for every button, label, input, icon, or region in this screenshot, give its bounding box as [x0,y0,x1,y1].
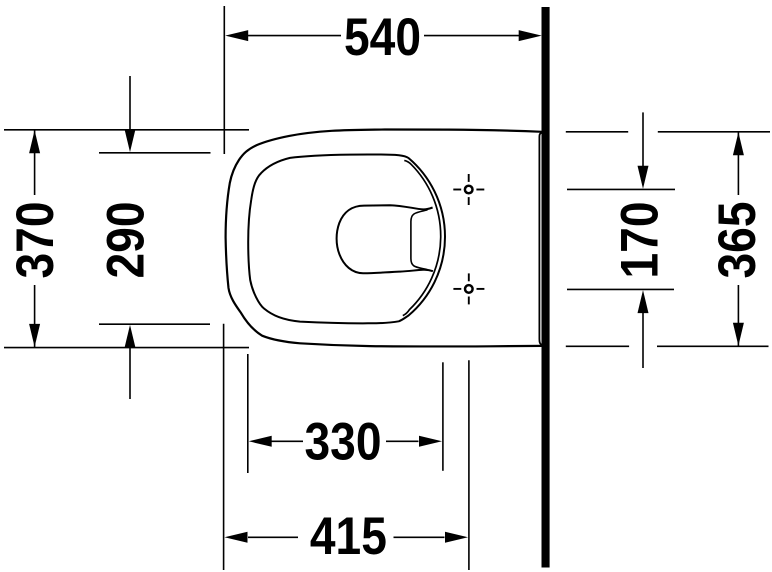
svg-text:415: 415 [310,507,387,566]
svg-text:170: 170 [611,202,670,279]
svg-text:330: 330 [305,413,382,472]
svg-text:290: 290 [97,202,156,279]
svg-text:540: 540 [344,8,421,67]
svg-text:370: 370 [6,202,65,279]
svg-text:365: 365 [708,202,767,279]
